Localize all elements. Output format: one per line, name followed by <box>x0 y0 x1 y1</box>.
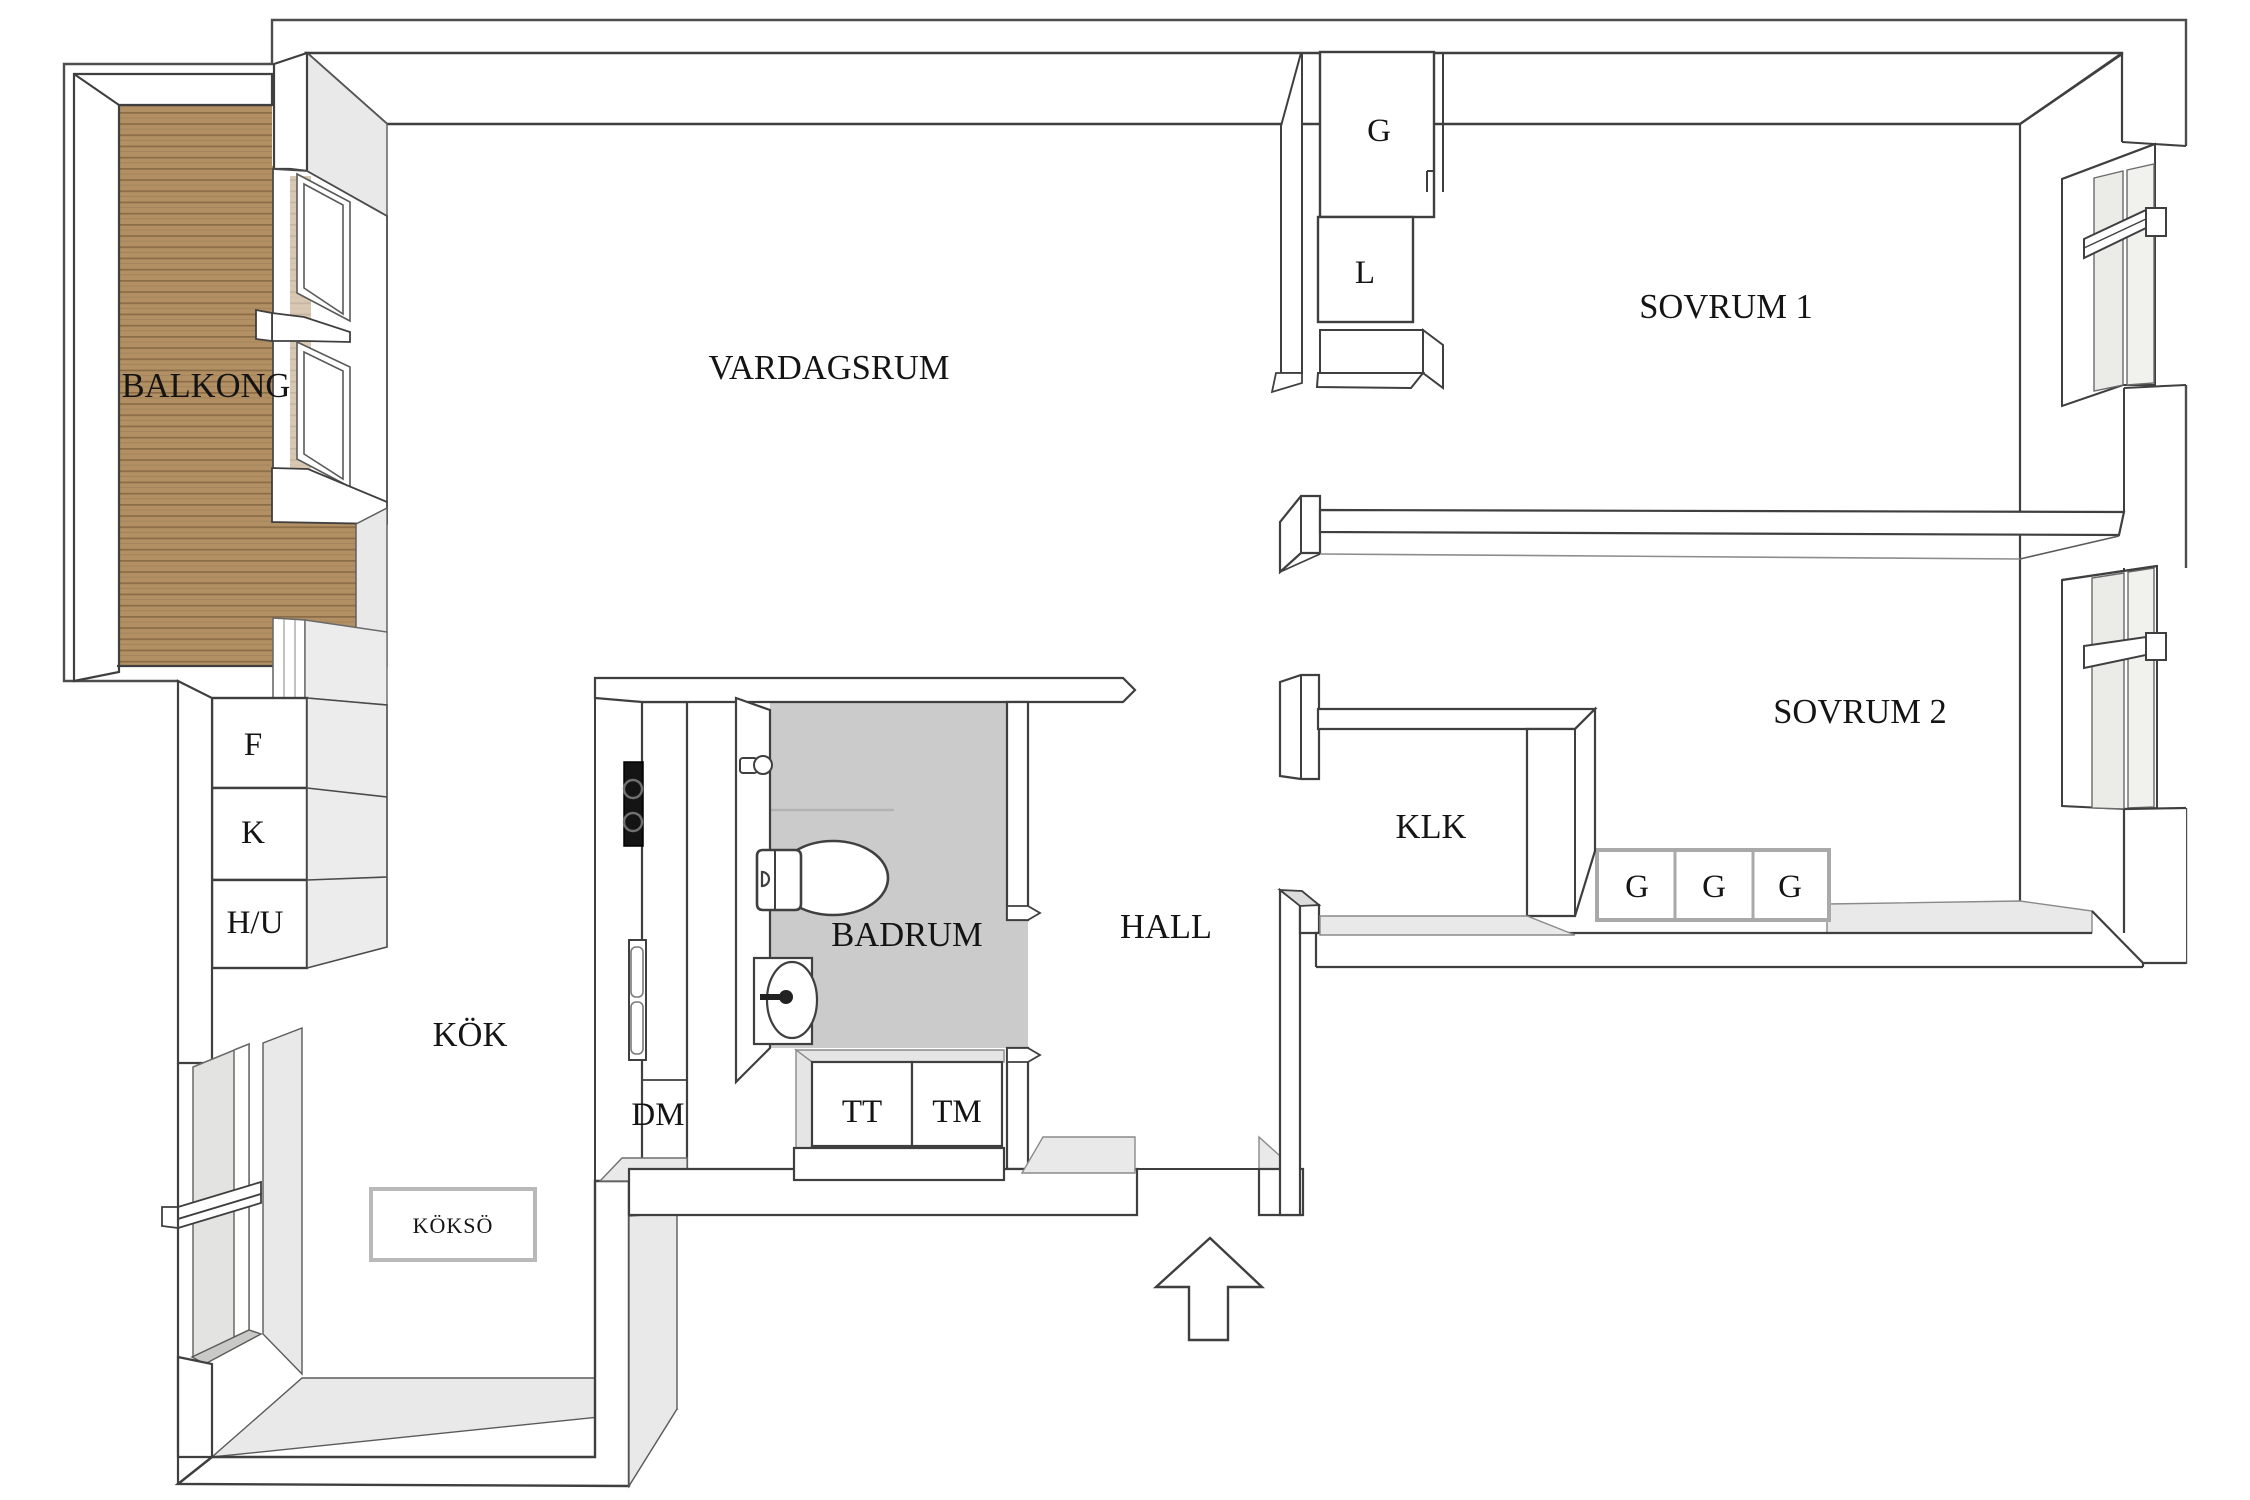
svg-text:SOVRUM 2: SOVRUM 2 <box>1773 693 1947 731</box>
svg-text:L: L <box>1355 255 1375 291</box>
svg-text:DM: DM <box>631 1097 684 1133</box>
svg-text:G: G <box>1778 869 1802 905</box>
svg-text:G: G <box>1367 113 1391 149</box>
svg-text:KÖK: KÖK <box>433 1016 508 1054</box>
svg-text:H/U: H/U <box>227 905 284 941</box>
svg-text:BALKONG: BALKONG <box>122 367 291 405</box>
svg-text:VARDAGSRUM: VARDAGSRUM <box>709 349 950 387</box>
svg-text:SOVRUM 1: SOVRUM 1 <box>1639 288 1813 326</box>
svg-text:G: G <box>1702 869 1726 905</box>
svg-text:TT: TT <box>842 1094 882 1130</box>
svg-text:TM: TM <box>932 1094 982 1130</box>
svg-text:BADRUM: BADRUM <box>831 916 982 954</box>
svg-text:KÖKSÖ: KÖKSÖ <box>413 1213 494 1238</box>
svg-text:G: G <box>1625 869 1649 905</box>
svg-text:KLK: KLK <box>1396 808 1467 846</box>
svg-text:K: K <box>241 815 265 851</box>
svg-text:HALL: HALL <box>1120 908 1212 946</box>
svg-text:F: F <box>244 727 262 763</box>
